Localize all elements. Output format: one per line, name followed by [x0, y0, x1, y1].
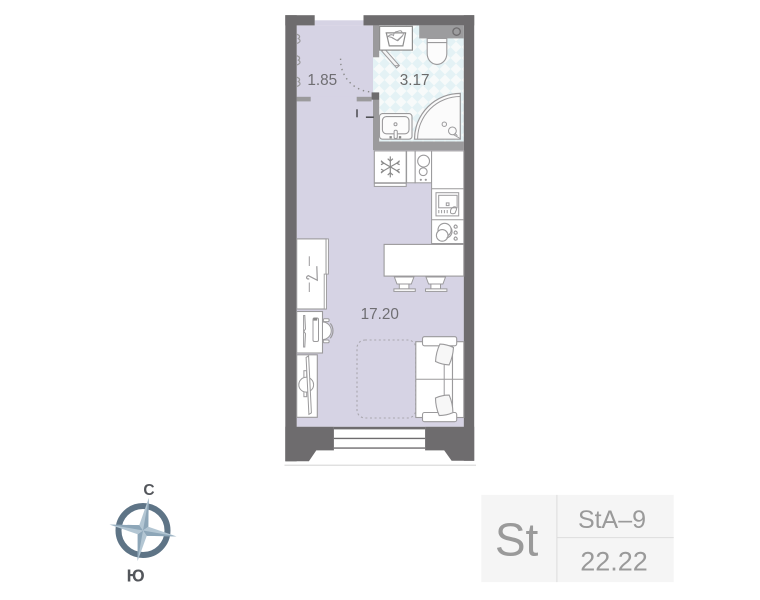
svg-text:3.17: 3.17	[400, 72, 430, 89]
svg-text:17.20: 17.20	[361, 306, 399, 323]
svg-text:С: С	[143, 482, 154, 499]
svg-text:StA–9: StA–9	[578, 506, 646, 534]
svg-text:1.85: 1.85	[307, 72, 337, 89]
svg-text:St: St	[495, 514, 539, 566]
svg-text:Ю: Ю	[127, 566, 145, 586]
svg-text:22.22: 22.22	[580, 546, 648, 576]
